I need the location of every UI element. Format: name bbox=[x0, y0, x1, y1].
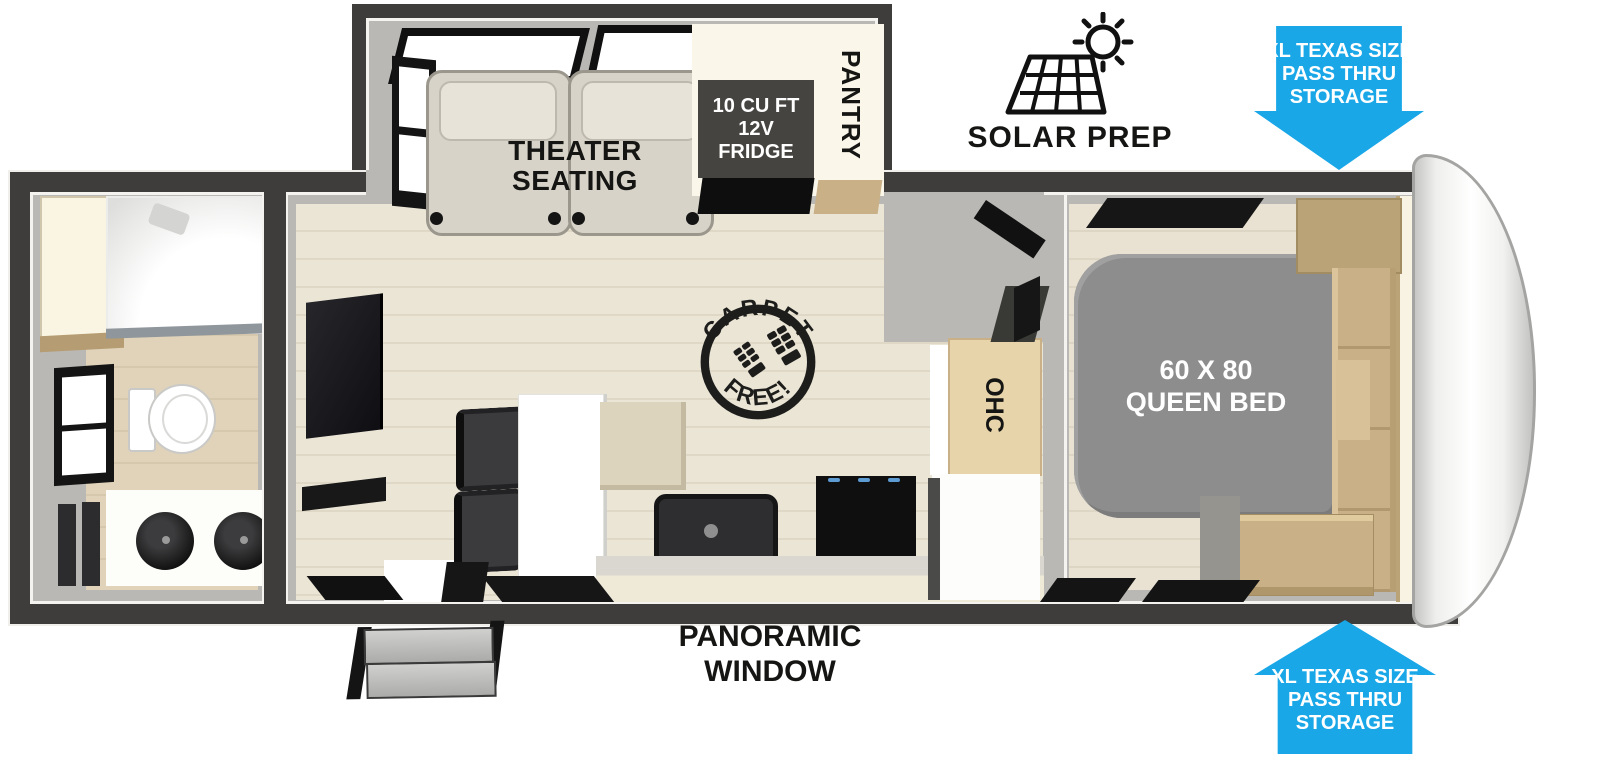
seat-cushion bbox=[439, 81, 557, 141]
burner-glint bbox=[858, 478, 870, 482]
kitchen-ohc-label: OHC bbox=[978, 345, 1008, 465]
step-tread bbox=[366, 661, 497, 699]
bathroom-partition-wall bbox=[264, 192, 286, 604]
front-cap bbox=[1412, 154, 1536, 628]
window-pane bbox=[62, 374, 106, 425]
storage-arrow-bottom-label: XL TEXAS SIZE PASS THRU STORAGE bbox=[1254, 620, 1436, 735]
burner-glint bbox=[828, 478, 840, 482]
fridge-label: 10 CU FT 12V FRIDGE bbox=[713, 95, 800, 164]
window-pane bbox=[62, 428, 106, 475]
storage-arrow-down: XL TEXAS SIZE PASS THRU STORAGE bbox=[1254, 26, 1424, 170]
boot-print-icon bbox=[733, 341, 767, 378]
seat-cushion bbox=[581, 81, 699, 141]
linen-cabinet bbox=[40, 196, 108, 338]
dinette-table bbox=[518, 394, 604, 586]
carpet-free-stamp: CARPET FREE! bbox=[688, 292, 828, 432]
toilet-bowl-inner bbox=[162, 394, 208, 444]
fridge-base bbox=[697, 178, 814, 214]
svg-text:CARPET: CARPET bbox=[697, 294, 819, 345]
pantry-cabinet-base bbox=[814, 180, 883, 214]
bedroom-wall-hairline bbox=[1064, 192, 1067, 604]
bathroom-panel bbox=[58, 504, 76, 586]
wall-edge bbox=[928, 478, 940, 600]
entry-trim bbox=[441, 562, 489, 602]
dinette-chair bbox=[454, 488, 522, 574]
queen-bed: 60 X 80 QUEEN BED bbox=[1074, 254, 1338, 518]
bottom-window bbox=[482, 576, 614, 602]
bathroom-window bbox=[54, 364, 114, 486]
faucet-dot bbox=[240, 536, 248, 544]
bedroom-bottom-window bbox=[1142, 580, 1260, 602]
pantry-label: PANTRY bbox=[836, 30, 866, 180]
bedroom-nightstand bbox=[1336, 360, 1370, 440]
kitchen-counter-peninsula bbox=[600, 402, 686, 490]
bedroom-dresser bbox=[1238, 514, 1374, 596]
entry-steps bbox=[351, 621, 500, 700]
bathroom-panel bbox=[82, 502, 100, 586]
queen-bed-label: 60 X 80 QUEEN BED bbox=[1126, 354, 1287, 419]
faucet-dot bbox=[162, 536, 170, 544]
bedroom-top-window bbox=[1086, 198, 1264, 228]
seat-foot bbox=[572, 212, 585, 225]
bedroom-gray-cabinet bbox=[1200, 496, 1240, 592]
burner-glint bbox=[888, 478, 900, 482]
stamp-text-top: CARPET bbox=[697, 294, 819, 345]
cabinet-column bbox=[930, 345, 950, 475]
cabinet-column bbox=[932, 474, 1040, 600]
storage-arrow-up: XL TEXAS SIZE PASS THRU STORAGE bbox=[1254, 620, 1436, 754]
solar-prep-icon bbox=[1000, 12, 1140, 122]
seat-foot bbox=[430, 212, 443, 225]
storage-arrow-top-label: XL TEXAS SIZE PASS THRU STORAGE bbox=[1254, 26, 1424, 109]
step-tread bbox=[363, 627, 494, 665]
seat-foot bbox=[548, 212, 561, 225]
fridge: 10 CU FT 12V FRIDGE bbox=[698, 80, 814, 178]
theater-seating-label: THEATER SEATING bbox=[420, 136, 730, 196]
bedroom-cabinet-top bbox=[1296, 198, 1402, 274]
rv-floorplan: THEATER SEATING 10 CU FT 12V FRIDGE PANT… bbox=[0, 0, 1600, 772]
dinette-chair bbox=[456, 406, 524, 492]
tv bbox=[306, 293, 383, 438]
toilet bbox=[128, 384, 214, 454]
panoramic-window-label: PANORAMIC WINDOW bbox=[560, 620, 980, 689]
window-pane bbox=[399, 66, 429, 129]
sink-faucet-dot bbox=[704, 524, 718, 538]
stove bbox=[816, 476, 916, 568]
solar-prep-label: SOLAR PREP bbox=[960, 122, 1180, 154]
